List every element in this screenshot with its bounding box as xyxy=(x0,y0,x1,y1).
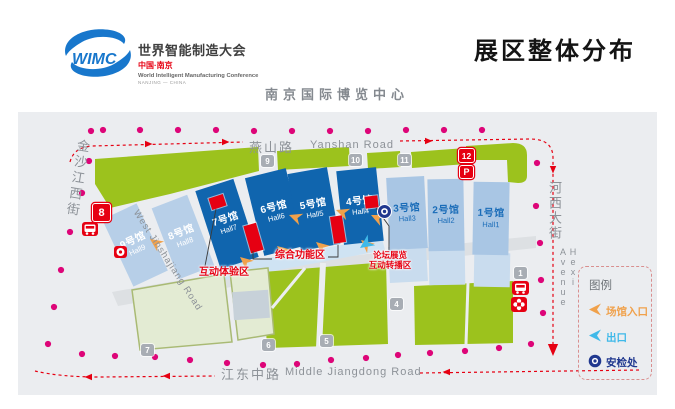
security-check-icon xyxy=(377,204,392,219)
road-north-cn: 燕山路 xyxy=(249,137,294,156)
road-south-cn: 江东中路 xyxy=(221,364,281,383)
legend-security-label: 安检处 xyxy=(606,355,638,370)
logo-region-cn: 中国·南京 xyxy=(138,60,298,71)
road-east-cn: 河西大街 xyxy=(545,181,564,243)
legend-entrance-arrow-icon xyxy=(588,303,602,316)
bus-stop-icon-east xyxy=(512,281,529,295)
gate-tag-5: 5 xyxy=(320,335,333,347)
legend-exit-label: 出口 xyxy=(606,330,627,345)
taxi-stand-icon xyxy=(114,246,127,258)
zone-label-function: 综合功能区 xyxy=(269,250,331,261)
hall-3-label-cn: 3号馆 xyxy=(393,202,421,215)
page-title: 展区整体分布 xyxy=(474,31,636,66)
legend-entrance-label: 场馆入口 xyxy=(606,304,648,319)
gate-tag-6: 6 xyxy=(262,339,275,351)
road-east-en: Hexi Avenue xyxy=(558,247,578,347)
hall1-apron xyxy=(474,253,511,288)
hall-1-label-cn: 1号馆 xyxy=(477,208,504,220)
metro-line-8-badge: 8 xyxy=(92,203,111,222)
hall-5-label-en: Hall5 xyxy=(306,209,324,221)
gate-tag-9: 9 xyxy=(261,155,274,167)
logo-text-block: 世界智能制造大会 中国·南京 World Intelligent Manufac… xyxy=(138,40,298,85)
logo-title-cn: 世界智能制造大会 xyxy=(138,40,298,59)
wimc-logo-icon: WIMC xyxy=(52,22,144,84)
legend: 图例 场馆入口 出口 安检处 xyxy=(578,266,652,380)
hall-3-label-en: Hall3 xyxy=(399,214,417,224)
road-south-en: Middle Jiangdong Road xyxy=(285,366,422,378)
legend-exit-arrow-icon xyxy=(588,329,602,342)
bus-stop-icon-west xyxy=(82,222,98,236)
hall-2-label-en: Hall2 xyxy=(437,216,454,225)
zone-label-interactive: 互动体验区 xyxy=(194,267,254,278)
logo-title-en: World Intelligent Manufacturing Conferen… xyxy=(138,73,298,79)
screenshot-stage: WIMC 世界智能制造大会 中国·南京 World Intelligent Ma… xyxy=(0,0,675,409)
gate-tag-1: 1 xyxy=(514,267,527,279)
hall-1: 1号馆 Hall1 xyxy=(472,182,509,256)
gate-tag-4: 4 xyxy=(390,298,403,310)
hall-2-label-cn: 2号馆 xyxy=(432,205,459,217)
zone-label-forum: 论坛展览 互动转播区 xyxy=(362,251,418,270)
gate-tag-7: 7 xyxy=(141,344,154,356)
hall-1-label-en: Hall1 xyxy=(482,220,499,229)
gate-tag-10: 10 xyxy=(349,154,362,166)
legend-title: 图例 xyxy=(589,277,612,293)
road-north-en: Yanshan Road xyxy=(310,139,394,151)
zone-label-forum-line2: 互动转播区 xyxy=(362,261,418,271)
gate-tag-11: 11 xyxy=(398,154,411,166)
hall-2: 2号馆 Hall2 xyxy=(427,179,464,252)
parking-badge: P xyxy=(459,165,474,179)
hall-3: 3号馆 Hall3 xyxy=(386,176,428,250)
venue-name: 南京国际博览中心 xyxy=(265,84,409,103)
gate-12-badge: 12 xyxy=(458,148,475,163)
logo-acronym: WIMC xyxy=(72,51,117,68)
legend-security-icon xyxy=(588,354,602,368)
transport-hub-icon xyxy=(511,297,527,312)
hall2-apron xyxy=(429,249,466,286)
